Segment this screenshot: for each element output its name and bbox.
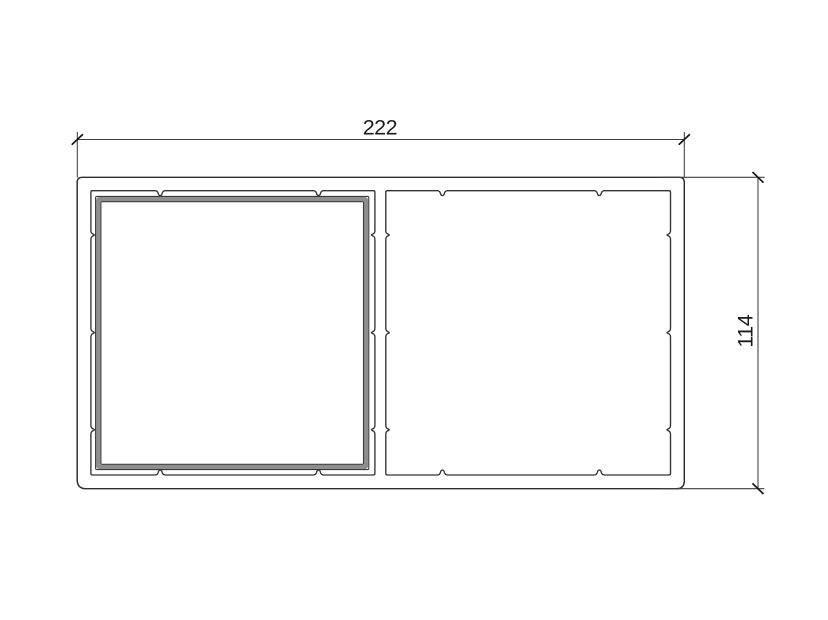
- svg-text:222: 222: [363, 116, 397, 140]
- svg-text:114: 114: [733, 314, 757, 347]
